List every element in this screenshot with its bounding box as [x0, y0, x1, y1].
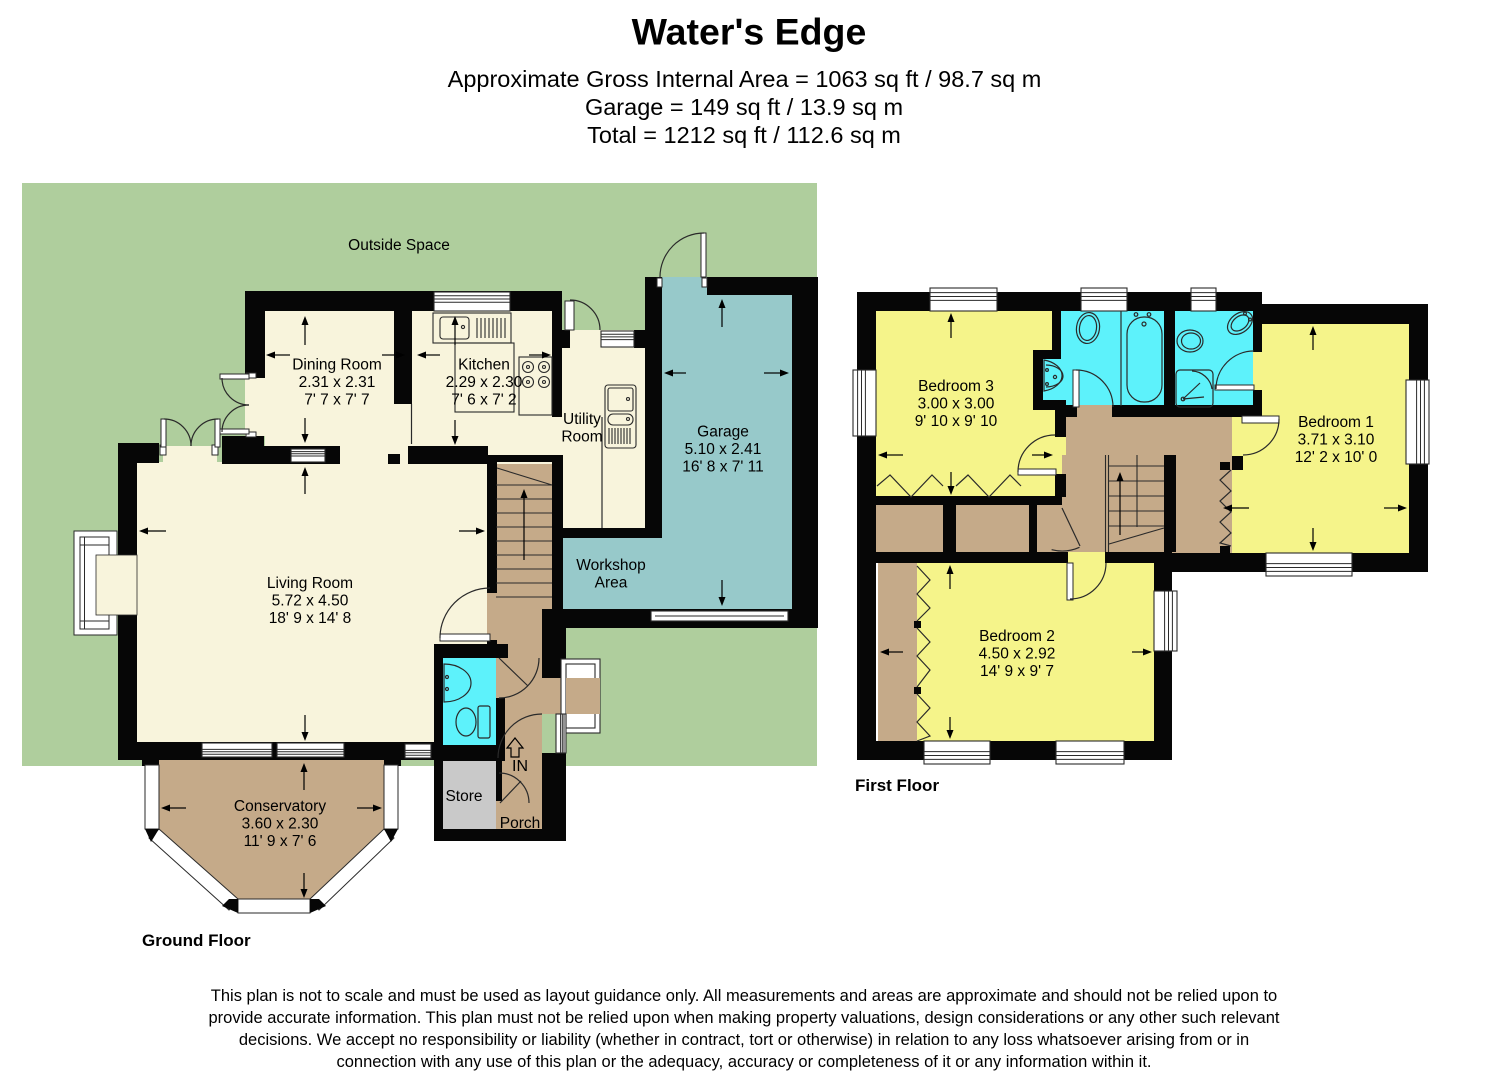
svg-text:Water's Edge: Water's Edge [632, 11, 867, 53]
svg-text:Outside Space: Outside Space [348, 237, 450, 254]
svg-text:3.71 x 3.10: 3.71 x 3.10 [1298, 432, 1375, 449]
svg-text:18' 9 x 14' 8: 18' 9 x 14' 8 [269, 610, 352, 627]
svg-text:16' 8 x 7' 11: 16' 8 x 7' 11 [682, 459, 763, 476]
svg-text:2.31 x 2.31: 2.31 x 2.31 [299, 374, 376, 391]
svg-text:7' 6 x 7' 2: 7' 6 x 7' 2 [451, 392, 516, 409]
svg-text:12' 2 x 10' 0: 12' 2 x 10' 0 [1295, 449, 1378, 466]
svg-text:Utility: Utility [563, 411, 601, 428]
svg-text:IN: IN [512, 758, 528, 775]
svg-text:Workshop: Workshop [576, 557, 646, 574]
svg-text:3.60 x 2.30: 3.60 x 2.30 [242, 816, 319, 833]
svg-text:Bedroom 1: Bedroom 1 [1298, 414, 1374, 431]
svg-text:Ground Floor: Ground Floor [142, 931, 251, 950]
svg-text:Approximate Gross Internal Are: Approximate Gross Internal Area = 1063 s… [448, 66, 1042, 92]
svg-text:provide accurate information.: provide accurate information. This plan … [209, 1009, 1280, 1027]
svg-text:decisions. We accept no respon: decisions. We accept no responsibility o… [239, 1031, 1249, 1049]
svg-text:Bedroom 3: Bedroom 3 [918, 378, 994, 395]
svg-text:5.72 x 4.50: 5.72 x 4.50 [272, 593, 349, 610]
svg-text:Living Room: Living Room [267, 575, 353, 592]
svg-text:connection with any use of thi: connection with any use of this plan or … [336, 1053, 1151, 1071]
svg-text:Bedroom 2: Bedroom 2 [979, 628, 1055, 645]
svg-text:Room: Room [561, 429, 602, 446]
svg-text:First Floor: First Floor [855, 776, 939, 795]
svg-text:14' 9 x 9' 7: 14' 9 x 9' 7 [980, 663, 1054, 680]
svg-text:5.10 x 2.41: 5.10 x 2.41 [685, 441, 762, 458]
svg-text:2.29 x 2.30: 2.29 x 2.30 [446, 374, 523, 391]
svg-text:Garage = 149 sq ft / 13.9 sq m: Garage = 149 sq ft / 13.9 sq m [585, 94, 903, 120]
svg-text:Area: Area [595, 575, 628, 592]
svg-text:11' 9 x 7' 6: 11' 9 x 7' 6 [244, 833, 317, 850]
svg-text:This plan is not to scale and: This plan is not to scale and must be us… [211, 987, 1277, 1005]
svg-text:7' 7 x 7' 7: 7' 7 x 7' 7 [304, 392, 369, 409]
svg-text:Kitchen: Kitchen [458, 357, 510, 374]
svg-text:4.50 x 2.92: 4.50 x 2.92 [979, 646, 1056, 663]
svg-text:Store: Store [445, 788, 482, 805]
svg-text:9' 10 x 9' 10: 9' 10 x 9' 10 [915, 413, 998, 430]
svg-text:Porch: Porch [500, 815, 541, 832]
svg-text:3.00 x 3.00: 3.00 x 3.00 [918, 396, 995, 413]
svg-text:Conservatory: Conservatory [234, 798, 326, 815]
svg-text:Dining Room: Dining Room [292, 357, 382, 374]
svg-text:Total = 1212 sq ft / 112.6 sq: Total = 1212 sq ft / 112.6 sq m [587, 122, 901, 148]
svg-text:Garage: Garage [697, 424, 749, 441]
